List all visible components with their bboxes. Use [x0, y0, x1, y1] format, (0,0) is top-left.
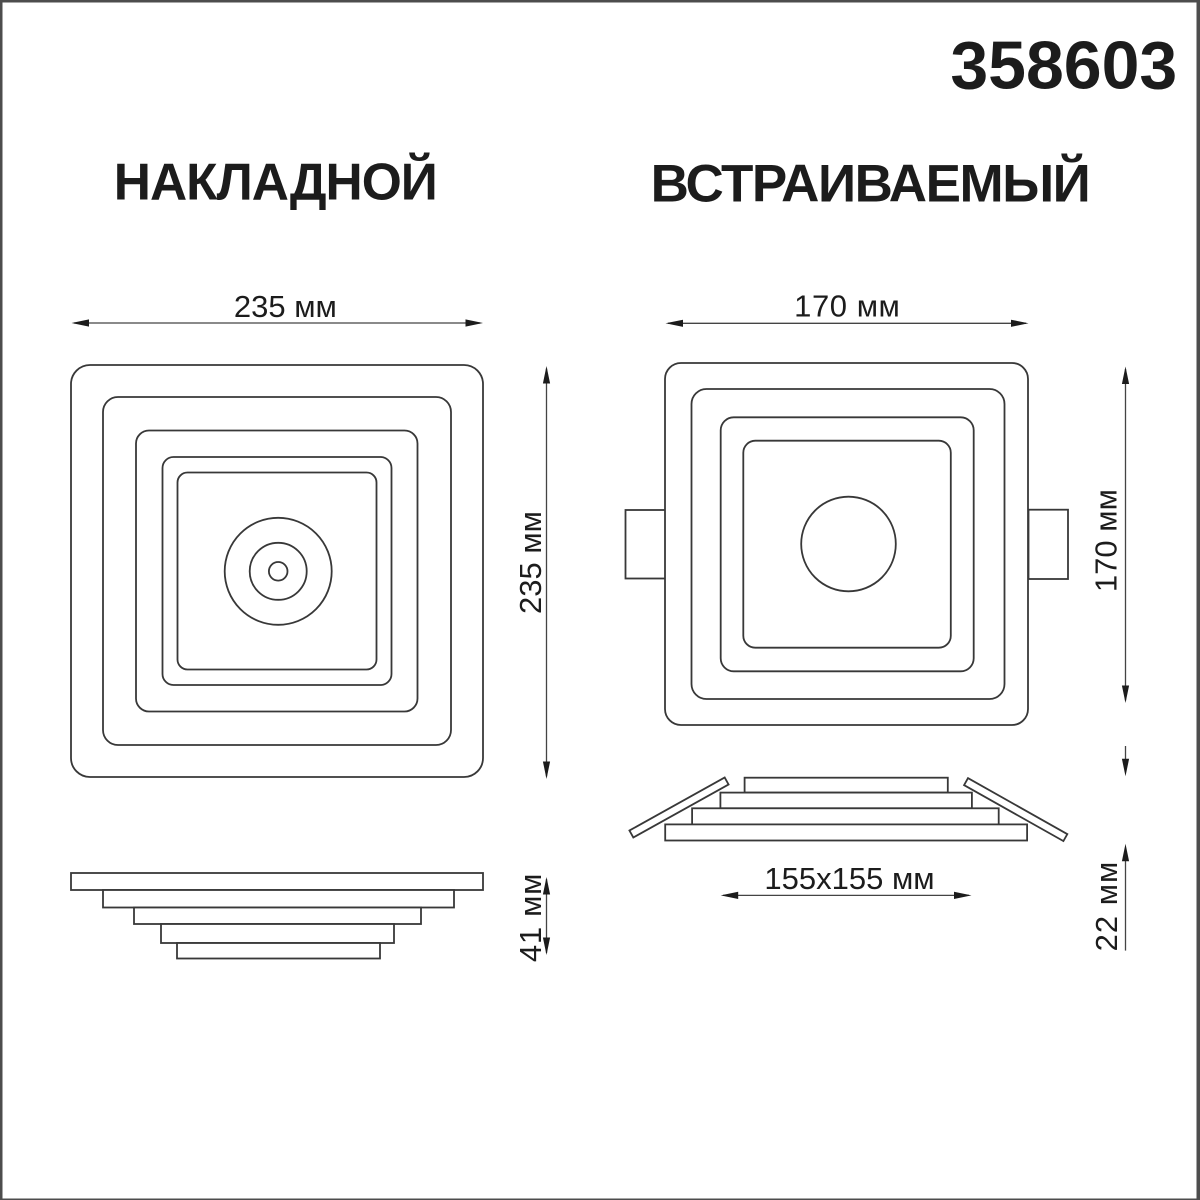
svg-text:235 мм: 235 мм	[513, 511, 548, 614]
svg-text:358603: 358603	[950, 28, 1177, 104]
svg-text:41 мм: 41 мм	[513, 873, 548, 962]
svg-text:22 мм: 22 мм	[1089, 861, 1124, 952]
svg-text:235 мм: 235 мм	[234, 289, 337, 324]
svg-text:170 мм: 170 мм	[794, 288, 900, 323]
svg-text:155x155 мм: 155x155 мм	[764, 861, 934, 896]
svg-text:ВСТРАИВАЕМЫЙ: ВСТРАИВАЕМЫЙ	[651, 153, 1090, 214]
svg-text:170 мм: 170 мм	[1089, 489, 1124, 592]
svg-text:НАКЛАДНОЙ: НАКЛАДНОЙ	[114, 153, 437, 211]
